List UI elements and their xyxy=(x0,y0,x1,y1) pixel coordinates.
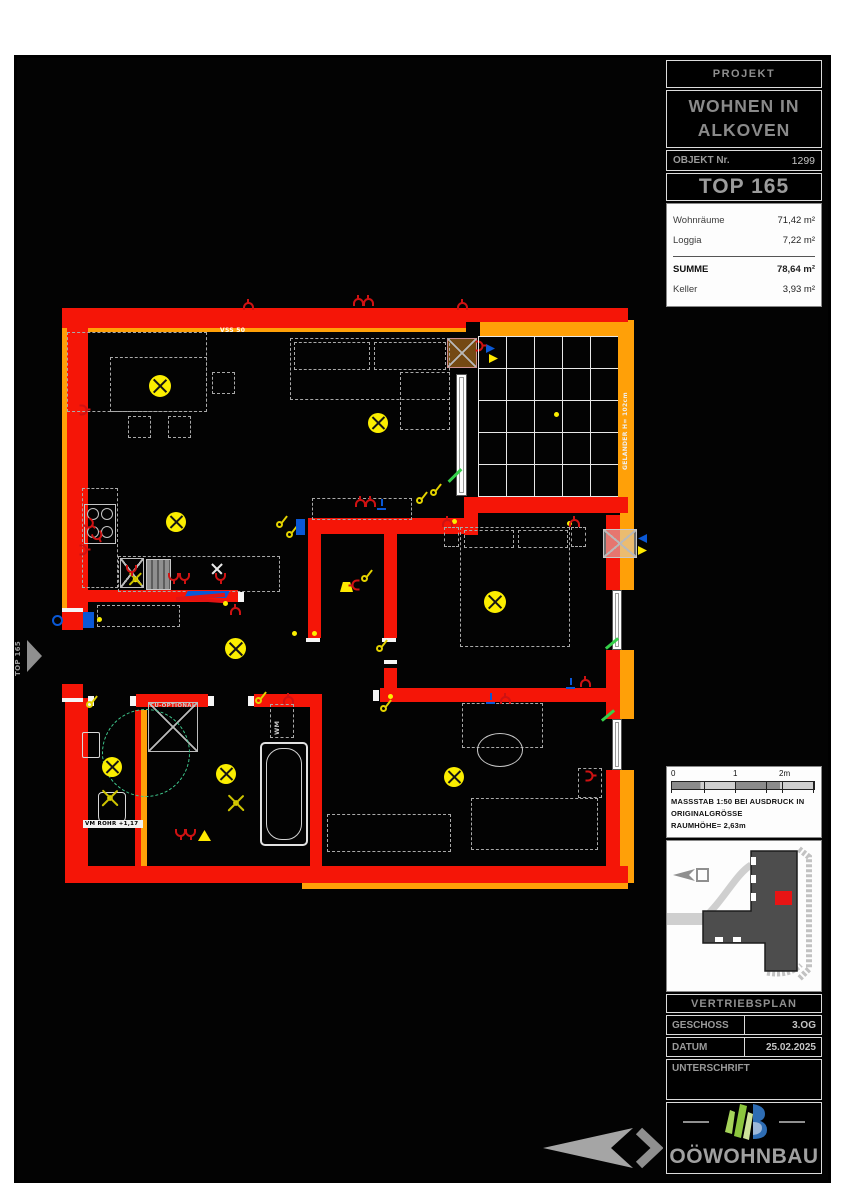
ceiling-light-icon xyxy=(444,767,464,787)
data-outlet-icon xyxy=(486,696,495,704)
kitchen-counter xyxy=(97,605,180,627)
table-row: SUMME 78,64 m² xyxy=(673,256,815,275)
connector-icon xyxy=(296,519,305,535)
title-block: PROJEKT WOHNEN IN ALKOVEN OBJEKT Nr. 129… xyxy=(666,60,826,1172)
scale-text-2: ORIGINALGRÖSSE xyxy=(671,809,743,818)
vent-arrow-icon xyxy=(638,534,647,543)
ceiling-light-icon xyxy=(225,638,246,659)
switch-icon xyxy=(376,645,383,652)
railing-wall xyxy=(302,883,628,889)
socket-icon xyxy=(185,829,196,837)
logo-line xyxy=(779,1121,805,1123)
geschoss-value: 3.OG xyxy=(745,1016,821,1034)
pillow xyxy=(464,530,514,548)
datum-label: DATUM xyxy=(667,1038,745,1056)
table-row: Loggia 7,22 m² xyxy=(673,235,815,246)
ceiling-light-icon xyxy=(368,413,388,433)
wall-light-icon xyxy=(100,788,120,808)
scale-bar: 0 1 2m MASSSTAB 1:50 BEI AUSDRUCK IN ORI… xyxy=(666,766,822,838)
entrance-arrow-icon xyxy=(27,640,42,672)
wall-segment xyxy=(65,866,628,883)
scale-tick-1: 1 xyxy=(733,769,737,778)
ceiling-light-icon xyxy=(216,764,236,784)
wall-segment xyxy=(606,557,620,590)
chair xyxy=(128,416,151,438)
socket-icon xyxy=(363,298,374,306)
drawing-page: VSS 50 GELÄNDER H= 102cm CU-OPTIONAL WM … xyxy=(0,0,842,1191)
objekt-box: OBJEKT Nr. 1299 xyxy=(666,150,822,171)
site-map xyxy=(666,840,822,992)
plan-label-wm: WM xyxy=(273,709,281,735)
wall-segment xyxy=(62,308,628,322)
wall-segment xyxy=(310,694,322,868)
objekt-label: OBJEKT Nr. xyxy=(673,155,730,166)
turning-circle xyxy=(102,709,190,797)
socket-icon xyxy=(243,302,254,310)
project-name-box: WOHNEN IN ALKOVEN xyxy=(666,90,822,148)
ceiling-light-icon xyxy=(149,375,171,397)
switch-icon xyxy=(380,705,387,712)
wall-segment xyxy=(606,770,620,867)
washbasin xyxy=(82,732,100,758)
objekt-number: 1299 xyxy=(792,155,815,167)
drawing-sheet: VSS 50 GELÄNDER H= 102cm CU-OPTIONAL WM … xyxy=(14,55,831,1183)
ceiling-light-icon xyxy=(166,512,186,532)
floor-plan: VSS 50 GELÄNDER H= 102cm CU-OPTIONAL WM … xyxy=(40,290,660,890)
socket-icon xyxy=(457,302,468,310)
project-name: WOHNEN IN ALKOVEN xyxy=(684,95,804,142)
area-value: 3,93 m² xyxy=(783,284,815,295)
door-jamb xyxy=(62,608,83,612)
north-arrow-icon xyxy=(541,1124,663,1172)
unterschrift-label: UNTERSCHRIFT xyxy=(667,1060,821,1077)
top-box: TOP 165 xyxy=(666,173,822,201)
window xyxy=(612,719,622,770)
table-row: Keller 3,93 m² xyxy=(673,284,815,295)
plan-label-vm-rohr: VM ROHR +1,17 xyxy=(83,820,143,828)
ceiling-light-icon xyxy=(484,591,506,613)
datum-value: 25.02.2025 xyxy=(745,1038,821,1056)
plan-label-gelaender: GELÄNDER H= 102cm xyxy=(622,378,629,470)
socket-icon xyxy=(580,679,591,687)
geschoss-row: GESCHOSS 3.OG xyxy=(666,1015,822,1035)
wall-segment xyxy=(380,688,618,702)
switch-icon xyxy=(416,497,423,504)
intercom-icon xyxy=(83,612,94,628)
wardrobe xyxy=(327,814,451,852)
logo-text: OÖWOHNBAU xyxy=(669,1145,818,1169)
loggia-floor xyxy=(478,336,618,497)
door-jamb xyxy=(248,696,254,706)
socket-icon xyxy=(352,580,360,591)
ceiling-light-icon xyxy=(102,757,122,777)
plan-label-cu-optional: CU-OPTIONAL xyxy=(150,703,196,709)
sofa-cushion xyxy=(294,342,370,370)
wall-segment xyxy=(384,534,397,638)
stove-burner-icon xyxy=(101,526,113,538)
wall-segment xyxy=(62,684,83,698)
light-point-icon xyxy=(223,601,228,606)
logo-box: OÖWOHNBAU xyxy=(666,1102,822,1174)
logo-line xyxy=(683,1121,709,1123)
scale-text-3: RAUMHÖHE= 2,63m xyxy=(671,821,746,830)
area-value: 78,64 m² xyxy=(777,264,815,275)
door-jamb xyxy=(238,592,244,602)
datum-row: DATUM 25.02.2025 xyxy=(666,1037,822,1057)
projekt-box: PROJEKT xyxy=(666,60,822,88)
railing-wall xyxy=(620,650,634,719)
wall-segment xyxy=(308,534,321,638)
wall-segment xyxy=(606,650,620,686)
shaft xyxy=(447,338,477,368)
data-outlet-icon xyxy=(566,681,575,689)
light-point-icon xyxy=(292,631,297,636)
scale-text-1: MASSSTAB 1:50 BEI AUSDRUCK IN xyxy=(671,797,804,806)
nightstand xyxy=(571,527,586,547)
wall-segment xyxy=(62,322,466,328)
scale-tick-0: 0 xyxy=(671,769,675,778)
shaft xyxy=(603,529,637,558)
geschoss-label: GESCHOSS xyxy=(667,1016,745,1034)
area-label: Keller xyxy=(673,284,697,295)
switch-icon xyxy=(361,575,368,582)
plan-type-label: VERTRIEBSPLAN xyxy=(691,998,797,1010)
area-value: 71,42 m² xyxy=(778,215,816,226)
area-label: Loggia xyxy=(673,235,702,246)
projekt-label: PROJEKT xyxy=(713,68,775,80)
doorbell-icon xyxy=(52,615,63,626)
area-value: 7,22 m² xyxy=(783,235,815,246)
socket-icon xyxy=(569,519,580,527)
area-table: Wohnräume 71,42 m² Loggia 7,22 m² SUMME … xyxy=(666,203,822,307)
scale-tick-2: 2m xyxy=(779,769,790,778)
data-outlet-icon xyxy=(377,502,386,510)
scale-ruler xyxy=(671,781,815,790)
socket-icon xyxy=(442,519,453,527)
desk-chair xyxy=(477,733,523,767)
nightstand xyxy=(444,527,459,547)
chaise xyxy=(400,372,450,430)
switch-icon xyxy=(430,489,437,496)
door-jamb xyxy=(306,638,320,642)
railing-wall xyxy=(480,320,628,336)
site-plan-graphic xyxy=(667,841,820,988)
plan-type-box: VERTRIEBSPLAN xyxy=(666,994,822,1013)
door-jamb xyxy=(208,696,214,706)
switch-icon xyxy=(86,701,93,708)
door-jamb xyxy=(130,696,136,706)
light-point-icon xyxy=(388,694,393,699)
socket-icon xyxy=(230,607,241,615)
unterschrift-box: UNTERSCHRIFT xyxy=(666,1059,822,1100)
socket-icon xyxy=(500,696,511,704)
wall-segment xyxy=(62,612,83,630)
socket-icon xyxy=(365,499,376,507)
window xyxy=(456,374,467,496)
wall-light-icon xyxy=(226,793,246,813)
door-jamb xyxy=(384,660,397,664)
socket-icon xyxy=(283,696,294,704)
wall-segment xyxy=(384,668,397,688)
entrance-arrow-label: TOP 165 xyxy=(14,636,22,676)
oowohnbau-logo-icon xyxy=(713,1100,775,1144)
sofa-cushion xyxy=(374,342,446,370)
chair xyxy=(168,416,191,438)
stove-burner-icon xyxy=(101,508,113,520)
side-table xyxy=(212,372,235,394)
switch-icon xyxy=(286,531,293,538)
switch-icon xyxy=(276,521,283,528)
table-row: Wohnräume 71,42 m² xyxy=(673,215,815,226)
area-label: Wohnräume xyxy=(673,215,725,226)
wall-segment xyxy=(65,698,88,868)
bed xyxy=(471,798,598,850)
light-point-icon xyxy=(97,617,102,622)
light-point-icon xyxy=(312,631,317,636)
plan-label-vss: VSS 50 xyxy=(220,327,245,334)
door-jamb xyxy=(373,690,379,701)
vent-arrow-icon xyxy=(638,546,647,555)
area-label: SUMME xyxy=(673,264,708,275)
bathtub xyxy=(260,742,308,846)
entrance-arrow: TOP 165 xyxy=(14,634,50,678)
door-jamb xyxy=(62,698,83,702)
wall-segment xyxy=(472,497,628,513)
pillow xyxy=(518,530,568,548)
switch-icon xyxy=(255,697,262,704)
wall-light-icon xyxy=(198,830,211,841)
unit-location-marker xyxy=(775,891,792,905)
unit-number: TOP 165 xyxy=(699,175,789,199)
